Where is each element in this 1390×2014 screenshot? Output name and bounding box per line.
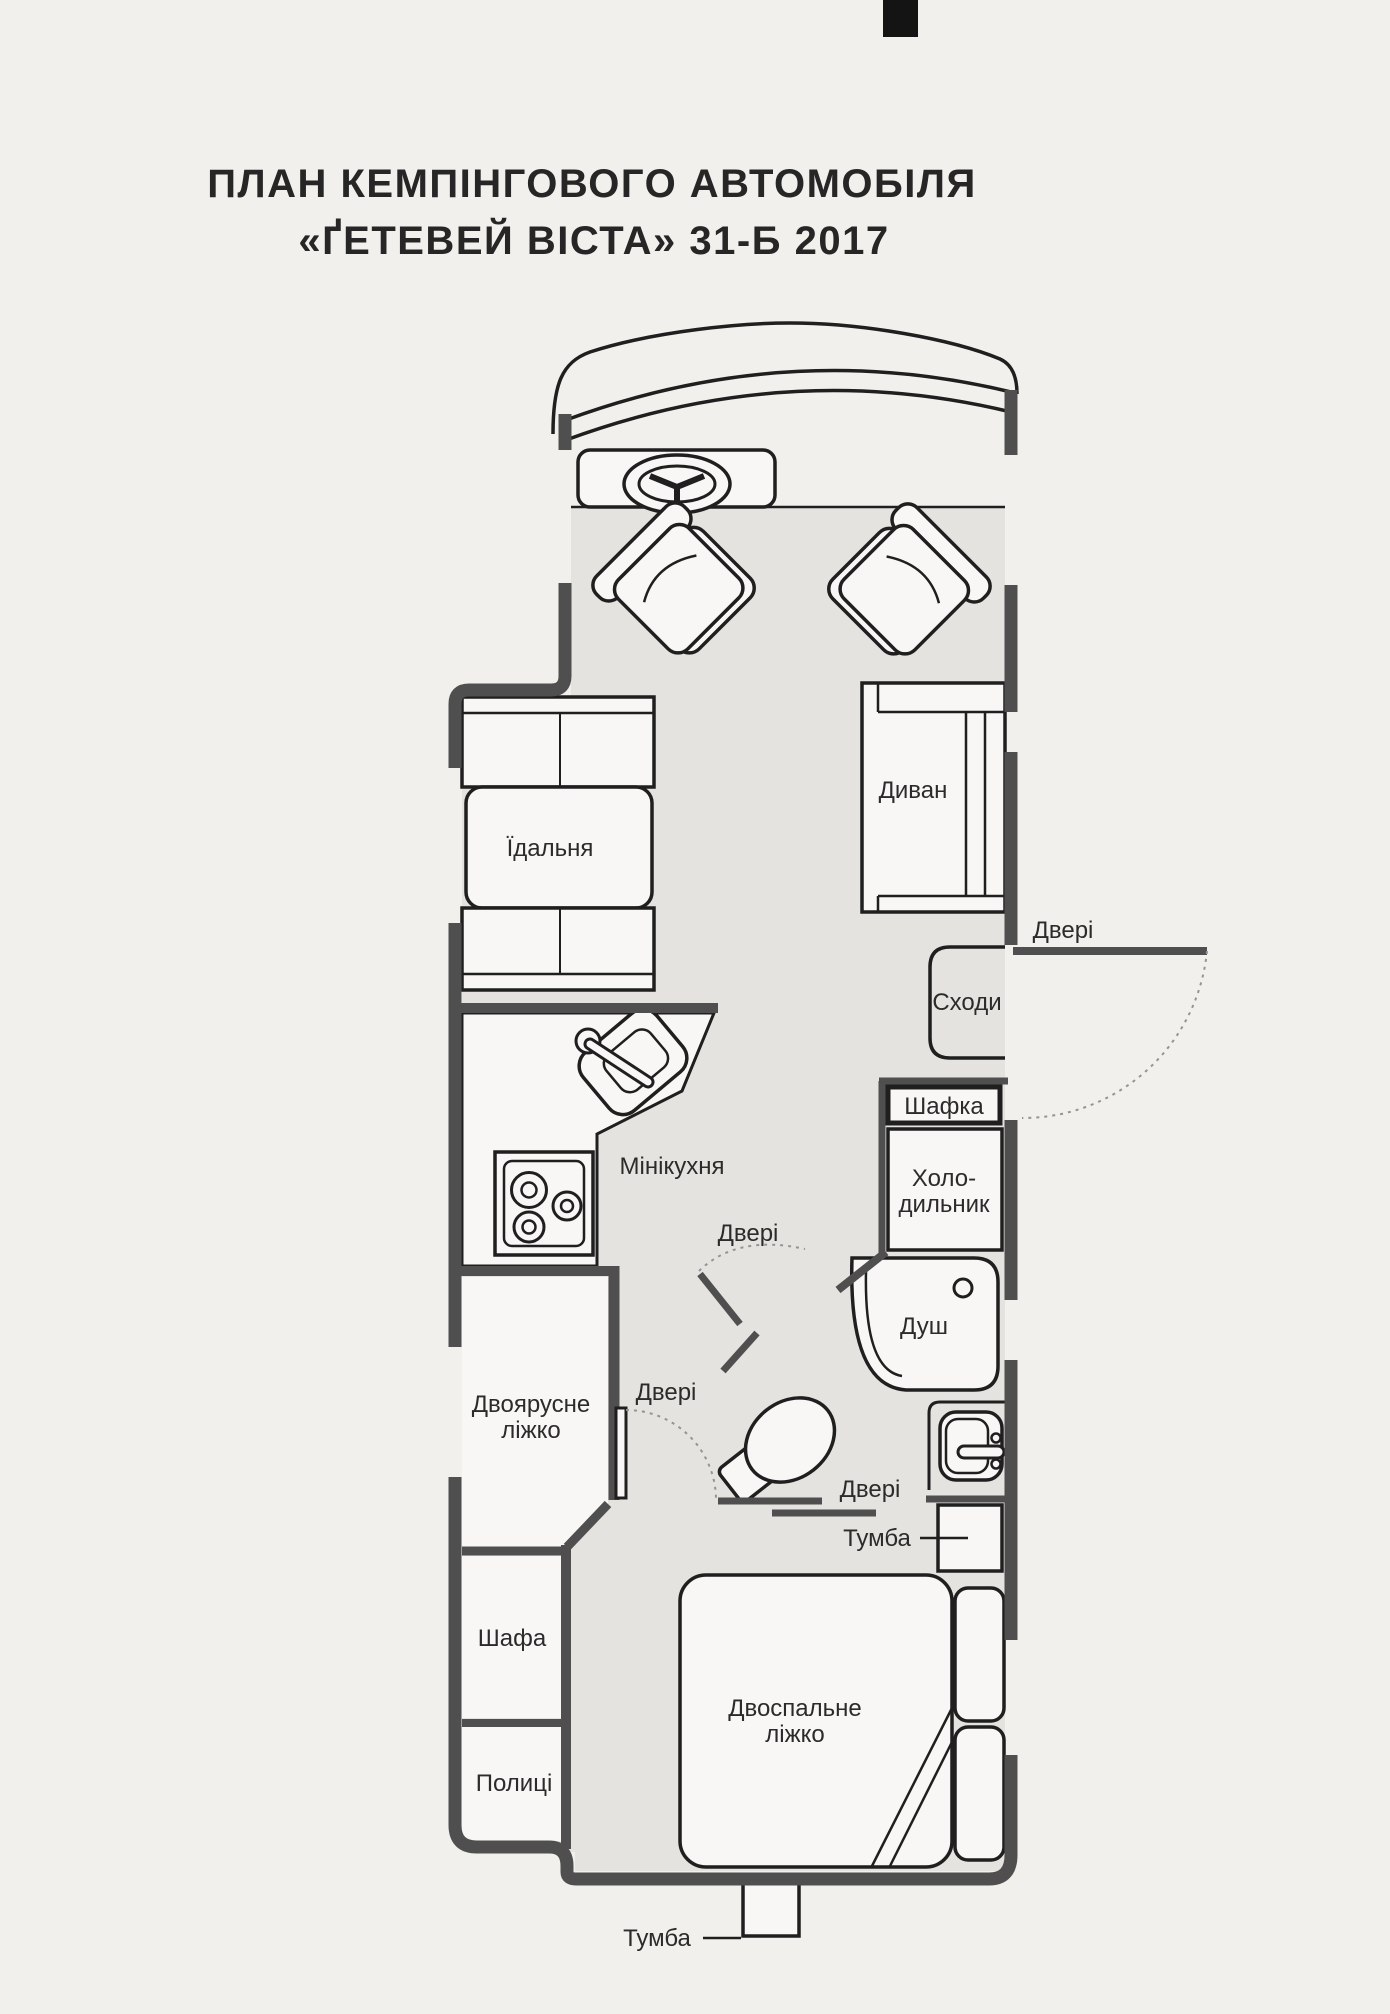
scan-mark bbox=[883, 0, 918, 37]
bed-cushion-top bbox=[955, 1588, 1004, 1721]
nightstand-rear-box bbox=[743, 1878, 799, 1936]
label-bunk-line1: Двоярусне bbox=[472, 1391, 591, 1418]
label-wardrobe: Шафа bbox=[478, 1625, 547, 1652]
label-stairs: Сходи bbox=[932, 989, 1001, 1016]
label-shower: Душ bbox=[900, 1313, 948, 1340]
floorplan-figure: ПЛАН КЕМПІНГОВОГО АВТОМОБІЛЯ «ҐЕТЕВЕЙ ВІ… bbox=[0, 0, 1390, 2014]
bed-cushion-bottom bbox=[955, 1727, 1004, 1860]
label-cabinet: Шафка bbox=[904, 1093, 984, 1120]
label-fridge-line2: дильник bbox=[898, 1191, 990, 1218]
label-mini-kitchen: Мінікухня bbox=[620, 1153, 725, 1180]
label-fridge-line1: Холо- bbox=[912, 1165, 976, 1192]
label-door-entry: Двері bbox=[1033, 917, 1094, 944]
label-door-corridor: Двері bbox=[636, 1379, 697, 1406]
vehicle-nose bbox=[553, 323, 1017, 440]
label-bed-line1: Двоспальне bbox=[728, 1695, 862, 1722]
faucet-icon bbox=[958, 1446, 1004, 1458]
label-shelves: Полиці bbox=[476, 1770, 553, 1797]
label-door-bedroom: Двері bbox=[840, 1476, 901, 1503]
corridor-door-leaf bbox=[616, 1408, 626, 1498]
entry-door-swing-arc bbox=[1022, 951, 1207, 1118]
page-title-line2: «ҐЕТЕВЕЙ ВІСТА» 31-Б 2017 bbox=[298, 217, 889, 263]
entry-door bbox=[1013, 951, 1207, 1118]
label-bed-line2: ліжко bbox=[765, 1721, 825, 1748]
label-sofa: Диван bbox=[879, 777, 948, 804]
shower-drain-icon bbox=[954, 1279, 972, 1297]
label-nightstand-rear: Тумба bbox=[623, 1925, 691, 1952]
dining-bench-bottom bbox=[462, 908, 654, 990]
stove bbox=[495, 1152, 593, 1255]
label-bunk-line2: ліжко bbox=[501, 1417, 561, 1444]
label-nightstand-mid: Тумба bbox=[843, 1525, 911, 1552]
dining-bench-top bbox=[462, 697, 654, 787]
book-page: ПЛАН КЕМПІНГОВОГО АВТОМОБІЛЯ «ҐЕТЕВЕЙ ВІ… bbox=[0, 0, 1390, 2014]
label-door-bathroom: Двері bbox=[718, 1220, 779, 1247]
label-dining: Їдальня bbox=[507, 835, 594, 862]
page-title-line1: ПЛАН КЕМПІНГОВОГО АВТОМОБІЛЯ bbox=[207, 162, 976, 206]
